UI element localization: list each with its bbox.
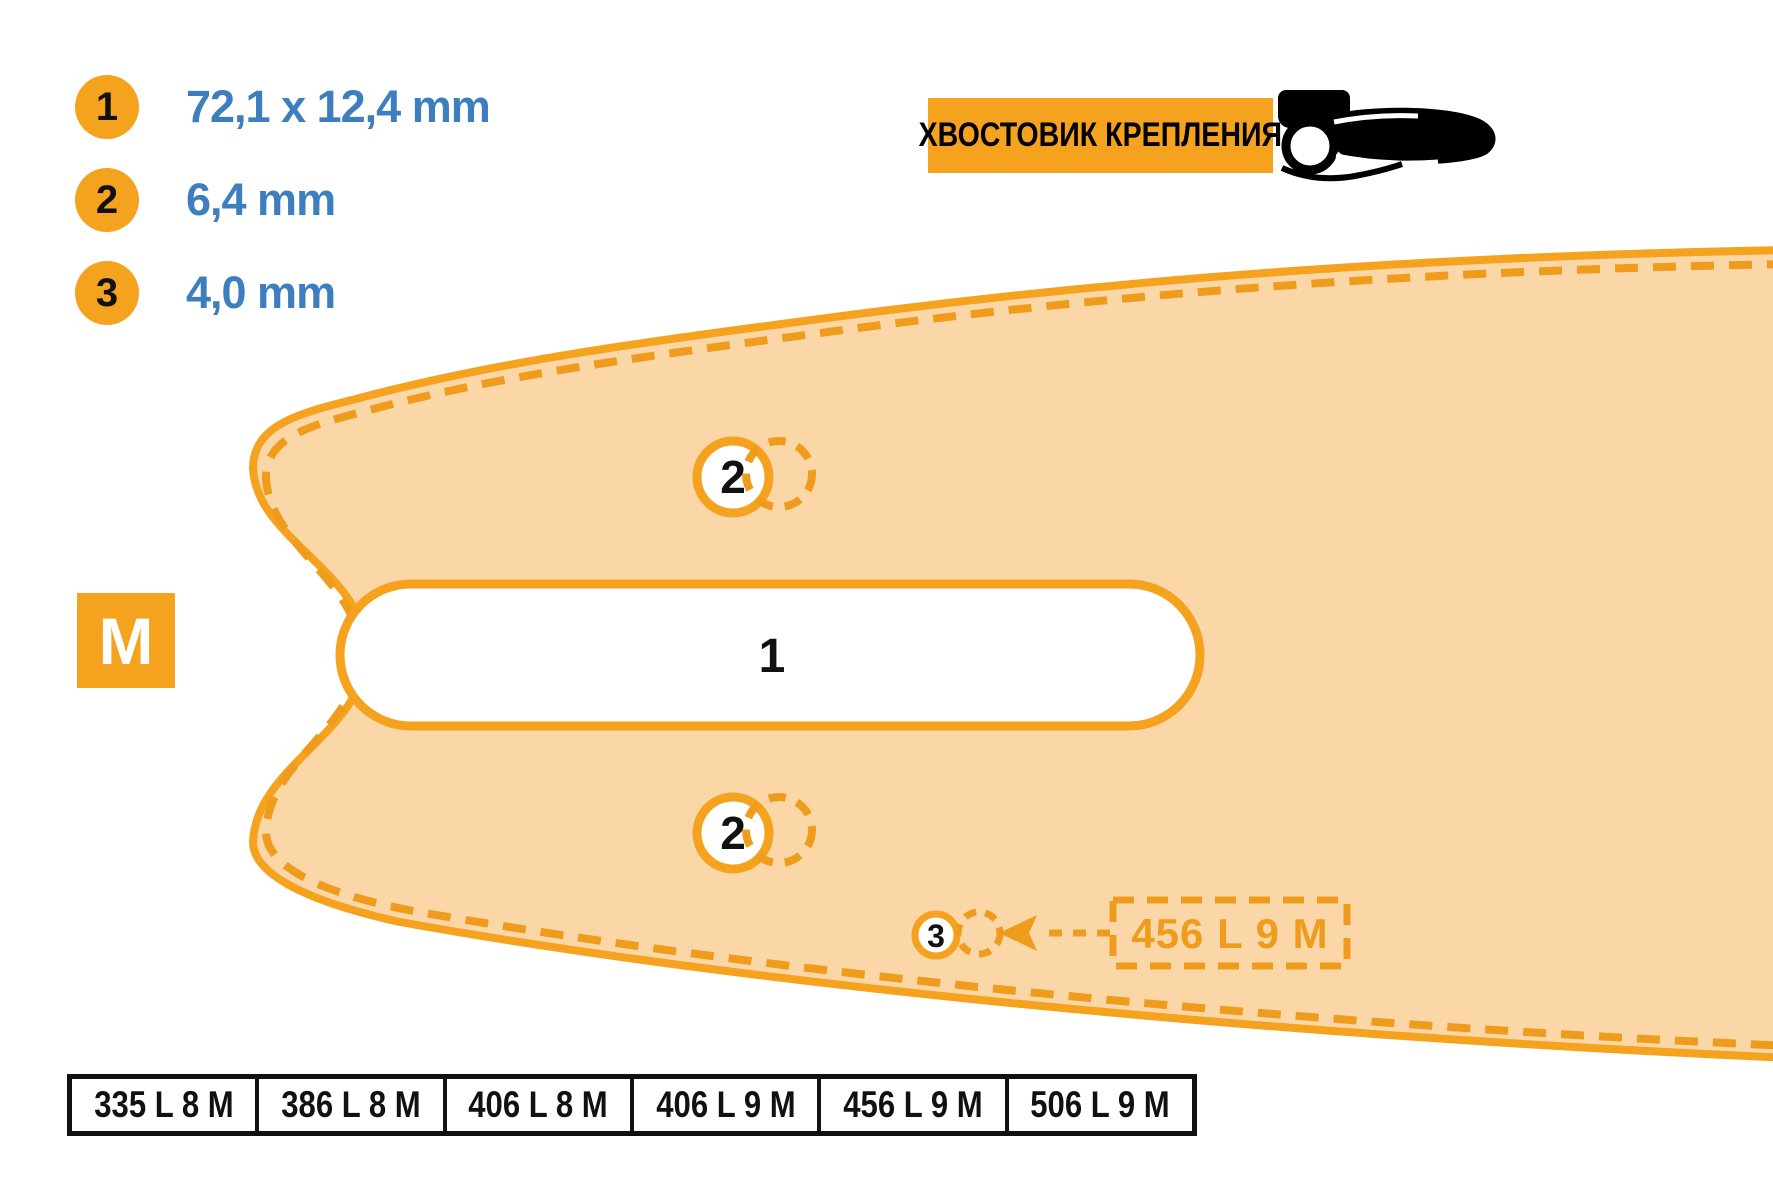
legend-marker-3: 3	[75, 261, 139, 325]
table-cell-value: 406 L 8 M	[469, 1084, 608, 1126]
oil-hole-bottom-label: 2	[720, 807, 746, 859]
oil-hole-top-label: 2	[720, 451, 746, 503]
table-cell-value: 335 L 8 M	[94, 1084, 233, 1126]
legend-marker-2-num: 2	[96, 178, 118, 223]
compat-table: 335 L 8 M 386 L 8 M 406 L 8 M 406 L 9 M …	[67, 1074, 1197, 1136]
mount-slot-label: 1	[759, 630, 786, 683]
table-cell: 506 L 9 M	[1005, 1079, 1192, 1131]
table-cell: 386 L 8 M	[255, 1079, 442, 1131]
legend-marker-3-num: 3	[96, 271, 118, 316]
callout-label: 456 L 9 M	[1131, 910, 1328, 957]
gauge-badge-label: M	[99, 603, 154, 679]
section-title-box: ХВОСТОВИК КРЕПЛЕНИЯ	[928, 98, 1273, 173]
legend-value-3: 4,0 mm	[186, 261, 335, 325]
legend-value-2: 6,4 mm	[186, 168, 335, 232]
section-title: ХВОСТОВИК КРЕПЛЕНИЯ	[919, 116, 1282, 155]
guide-bar-icon	[1270, 86, 1502, 186]
legend-marker-1-num: 1	[96, 85, 118, 130]
table-cell-value: 386 L 8 M	[281, 1084, 420, 1126]
table-cell-value: 506 L 9 M	[1031, 1084, 1170, 1126]
table-cell-value: 456 L 9 M	[843, 1084, 982, 1126]
table-cell: 406 L 8 M	[443, 1079, 630, 1131]
gauge-badge: M	[77, 593, 175, 688]
table-cell: 456 L 9 M	[817, 1079, 1004, 1131]
legend-marker-2: 2	[75, 168, 139, 232]
legend-marker-1: 1	[75, 75, 139, 139]
table-cell: 406 L 9 M	[630, 1079, 817, 1131]
adjuster-hole-label: 3	[927, 918, 945, 954]
table-cell: 335 L 8 M	[72, 1079, 255, 1131]
page: 456 L 9 M 1 2 2 3 1 72,1 x 12,4 mm 2 6,4…	[0, 0, 1773, 1182]
legend-value-1: 72,1 x 12,4 mm	[186, 75, 490, 139]
table-cell-value: 406 L 9 M	[656, 1084, 795, 1126]
